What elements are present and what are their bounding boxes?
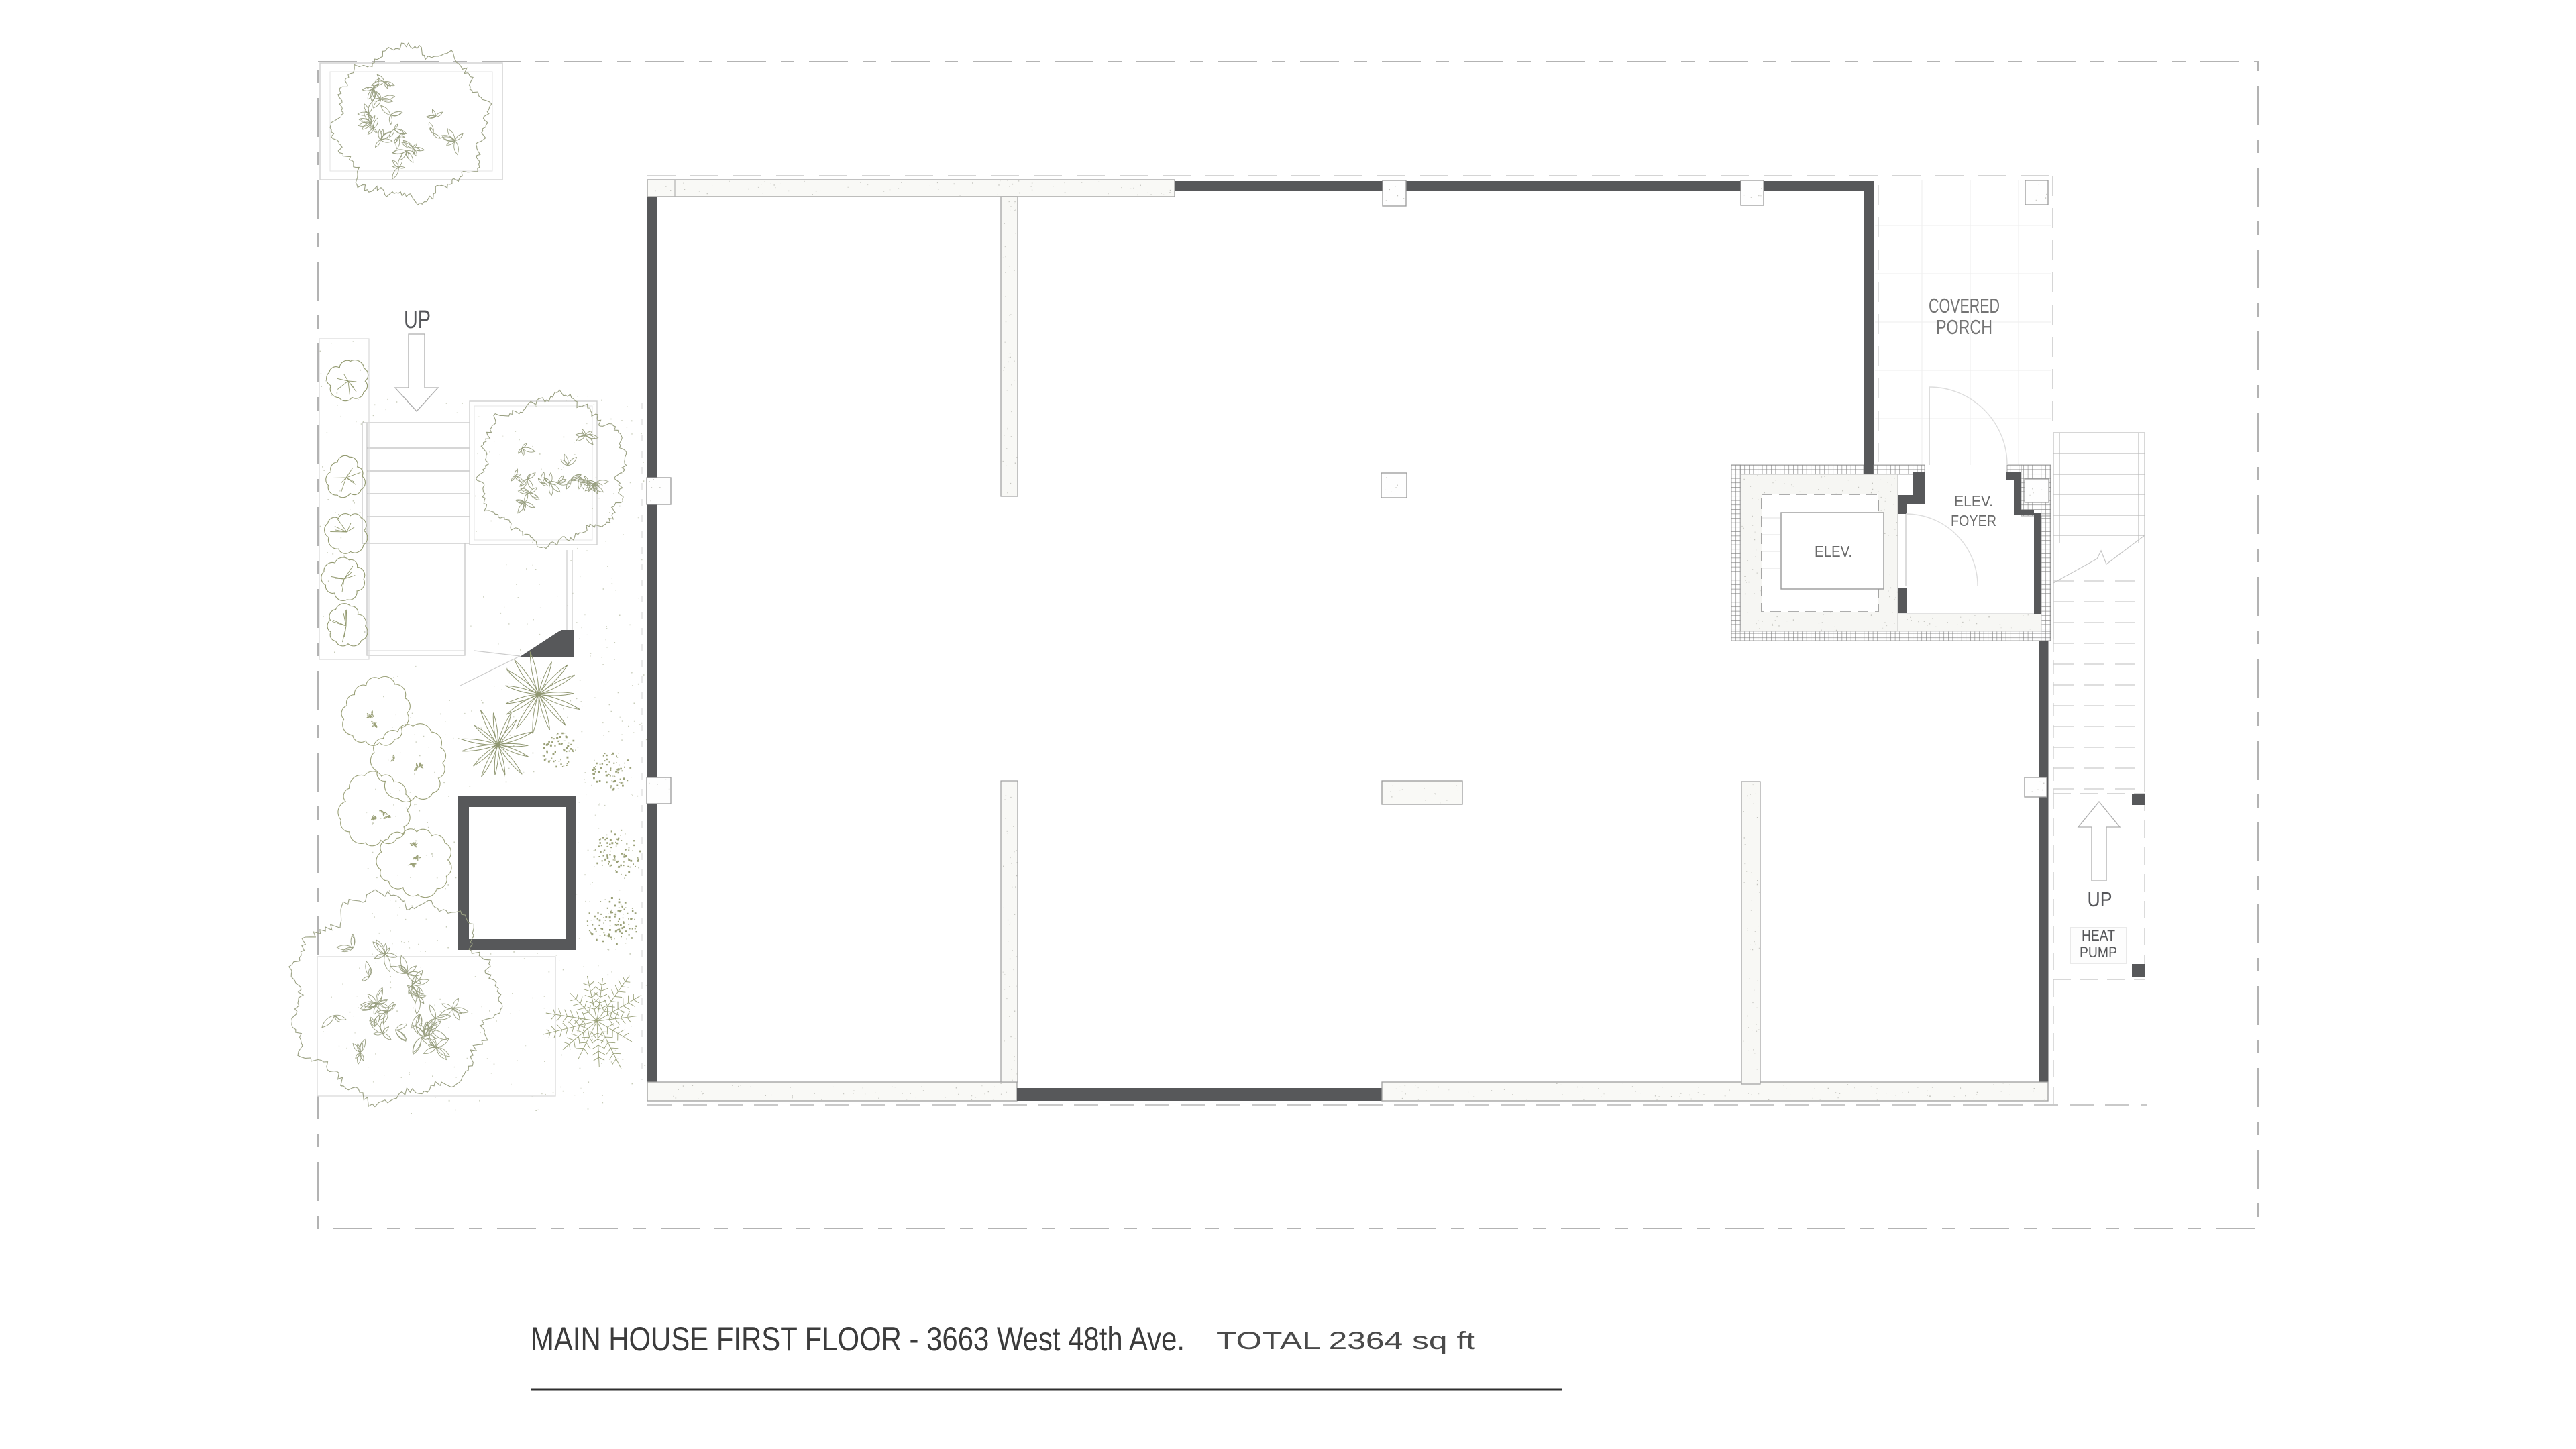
- svg-text:PORCH: PORCH: [1936, 315, 1992, 339]
- svg-text:MAIN HOUSE FIRST FLOOR - 3663: MAIN HOUSE FIRST FLOOR - 3663 West 48th …: [531, 1320, 1185, 1358]
- svg-text:PUMP: PUMP: [2080, 944, 2117, 961]
- svg-text:UP: UP: [2088, 888, 2112, 911]
- svg-text:COVERED: COVERED: [1929, 294, 2000, 317]
- svg-text:ELEV.: ELEV.: [1954, 492, 1993, 510]
- svg-text:TOTAL 2364 sq ft: TOTAL 2364 sq ft: [1216, 1327, 1476, 1354]
- svg-text:ELEV.: ELEV.: [1815, 543, 1852, 560]
- svg-text:HEAT: HEAT: [2082, 927, 2115, 944]
- svg-text:FOYER: FOYER: [1951, 512, 1996, 529]
- svg-text:UP: UP: [404, 306, 431, 334]
